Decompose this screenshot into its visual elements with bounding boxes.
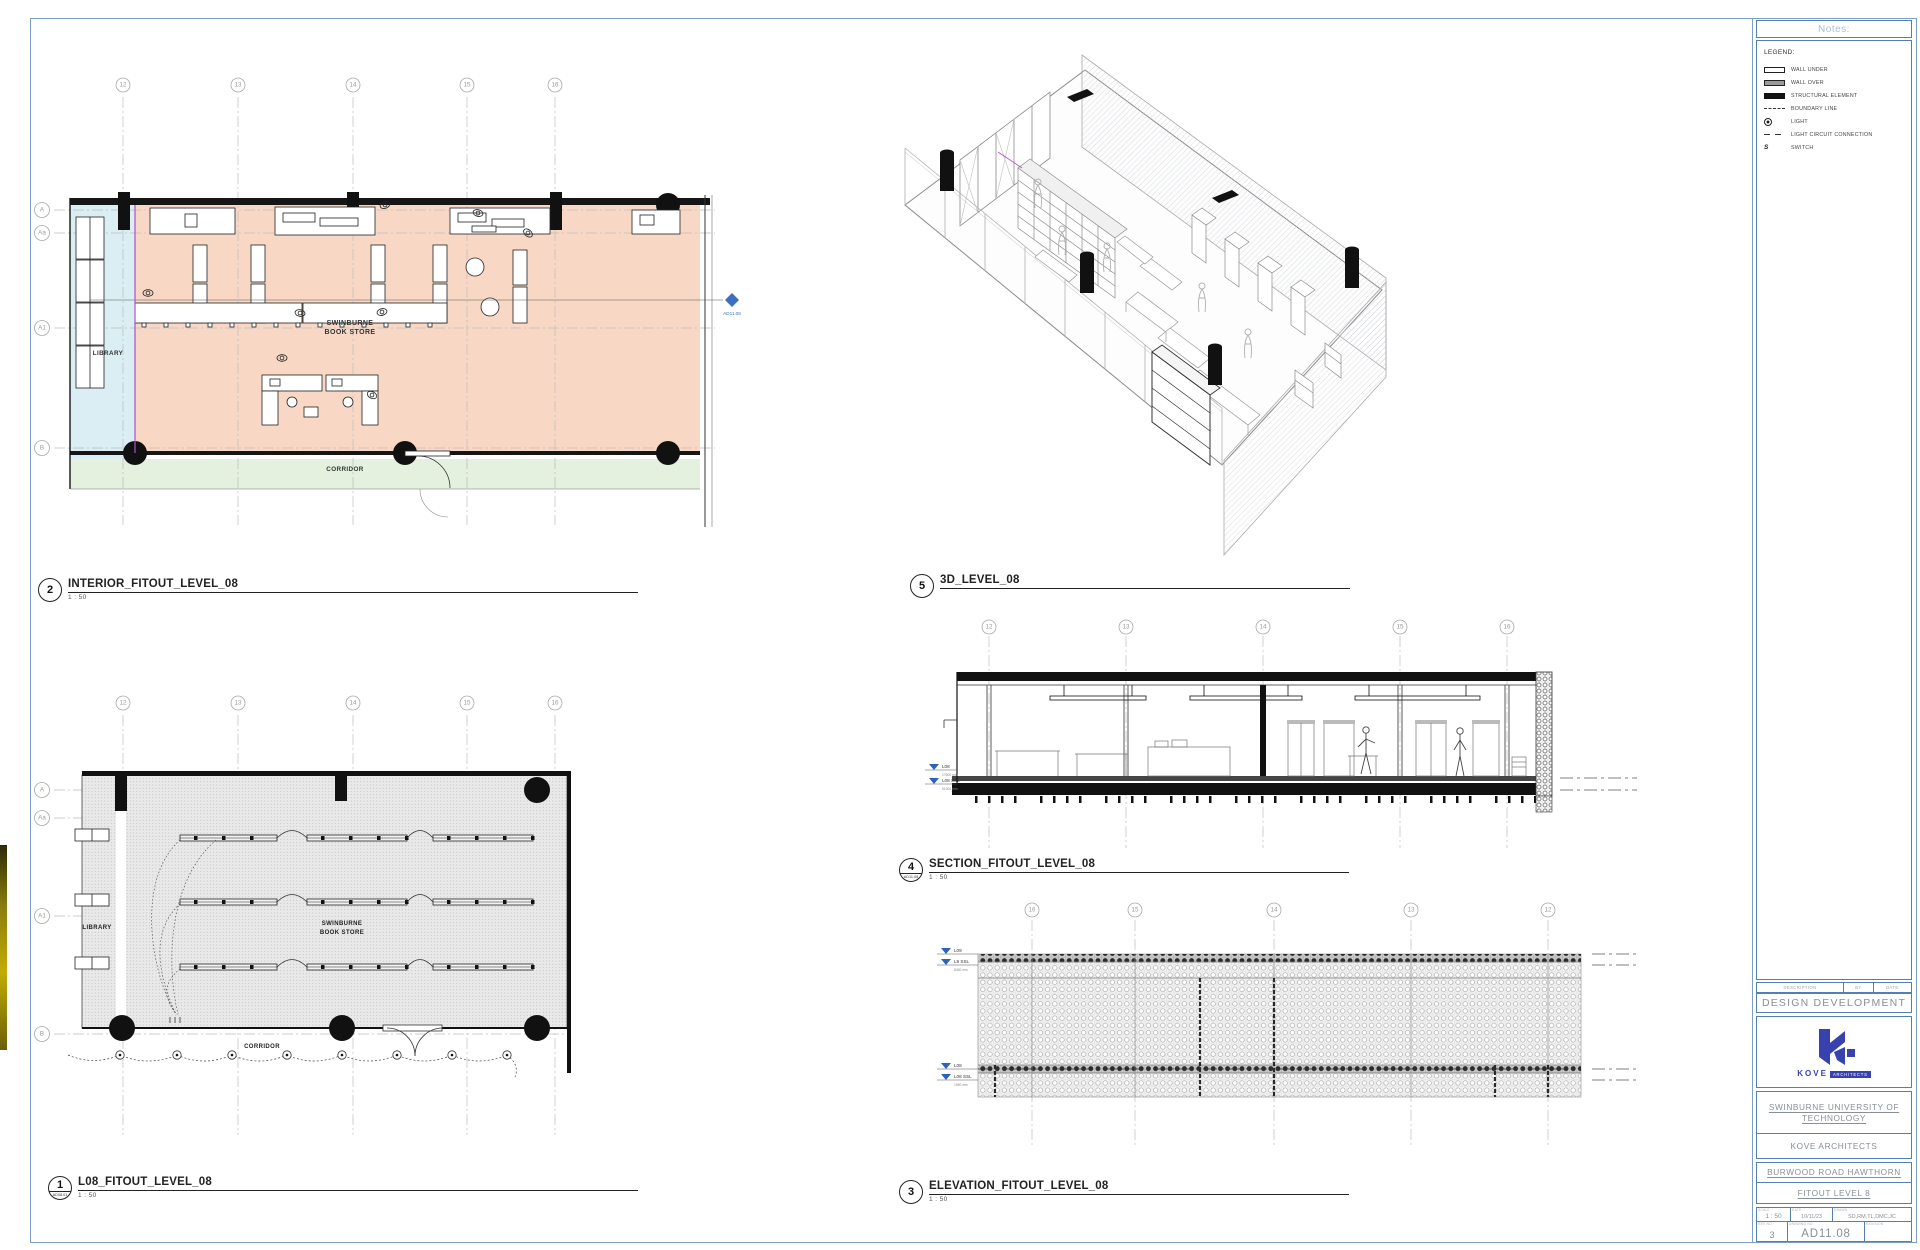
view-sheet-ref: AD08.01: [49, 1191, 71, 1197]
view-title-elevation: 3 ELEVATION_FITOUT_LEVEL_08 1 : 50: [899, 1180, 1349, 1204]
view-scale: 1 : 50: [68, 594, 638, 601]
rev-value: 3: [1769, 1230, 1774, 1240]
level-markers: L0827500 mmL08 SSL61300 mm: [925, 764, 960, 791]
svg-text:13: 13: [1122, 624, 1130, 631]
view-title-text: SECTION_FITOUT_LEVEL_08: [929, 858, 1349, 873]
interior-plan-view: 1213141516AAaA1B: [20, 55, 760, 570]
svg-text:14: 14: [1270, 907, 1278, 914]
svg-text:13: 13: [234, 700, 242, 707]
background-window-sliver: [0, 845, 7, 1050]
wall-over-icon: [1764, 80, 1785, 86]
svg-text:L08 SSL: L08 SSL: [954, 1074, 972, 1079]
sheet-number-label: DRAWING NO.: [1789, 1222, 1814, 1226]
corridor-light-run: [68, 1051, 516, 1077]
section-view: 1213141516: [900, 610, 1640, 855]
project-name: FITOUT LEVEL 8: [1798, 1188, 1871, 1199]
svg-text:14: 14: [349, 700, 357, 707]
drawn-value: SD,RM,TL,DMC,JC: [1848, 1214, 1896, 1220]
svg-text:16: 16: [1503, 624, 1511, 631]
library-label: LIBRARY: [93, 350, 124, 357]
store-label-1: SWINBURNE: [327, 320, 374, 327]
title-block-separator: [1752, 18, 1753, 1243]
view-number-bubble: 1 AD08.01: [48, 1176, 72, 1200]
logo-name: KOVE: [1797, 1069, 1828, 1078]
legend-item: LIGHT: [1764, 115, 1904, 128]
project-box: BURWOOD ROAD HAWTHORN FITOUT LEVEL 8: [1756, 1162, 1912, 1204]
continuation-lines: [1560, 778, 1637, 790]
svg-text:12: 12: [985, 624, 993, 631]
svg-text:L08 SSL: L08 SSL: [942, 778, 960, 783]
logo-subtitle: ARCHITECTS: [1830, 1071, 1871, 1078]
legend-label: SWITCH: [1791, 145, 1813, 151]
svg-text:13: 13: [1407, 907, 1415, 914]
legend-label: WALL OVER: [1791, 80, 1824, 86]
svg-text:15: 15: [463, 82, 471, 89]
kove-logo-icon: [1807, 1027, 1861, 1067]
boundary-icon: [1764, 108, 1785, 109]
axon-3d-view: [900, 40, 1640, 570]
view-title-interior: 2 INTERIOR_FITOUT_LEVEL_08 1 : 50: [38, 578, 638, 602]
legend-item: BOUNDARY LINE: [1764, 102, 1904, 115]
view-title-section: 4 AD11.08 SECTION_FITOUT_LEVEL_08 1 : 50: [899, 858, 1349, 882]
legend-item: SSWITCH: [1764, 141, 1904, 154]
scale-value: 1 : 50: [1765, 1213, 1781, 1220]
wall-under-icon: [1764, 67, 1785, 73]
notes-panel: LEGEND: WALL UNDERWALL OVERSTRUCTURAL EL…: [1756, 40, 1912, 980]
svg-text:16: 16: [551, 700, 559, 707]
svg-text:B: B: [40, 445, 44, 452]
client-name-line1: SWINBURNE UNIVERSITY OF: [1769, 1102, 1899, 1113]
architect-name: KOVE ARCHITECTS: [1791, 1141, 1878, 1152]
svg-text:13: 13: [234, 82, 242, 89]
svg-text:12: 12: [1544, 907, 1552, 914]
view-scale: 1 : 50: [78, 1192, 638, 1199]
view-title-rcp: 1 AD08.01 L08_FITOUT_LEVEL_08 1 : 50: [48, 1176, 638, 1200]
light-icon: [1764, 118, 1772, 126]
legend-label: LIGHT CIRCUIT CONNECTION: [1791, 132, 1872, 138]
drawn-label: DRAWN: [1834, 1208, 1847, 1212]
notes-header: Notes:: [1756, 20, 1912, 38]
store-label-2: BOOK STORE: [320, 930, 364, 936]
revision-label: REVISION: [1866, 1222, 1883, 1226]
section-people: [1358, 727, 1466, 776]
view-sheet-ref: AD11.08: [900, 873, 922, 879]
svg-text:1550 mm: 1550 mm: [954, 1083, 968, 1087]
svg-text:L08: L08: [954, 1063, 962, 1068]
drawing-sheet: { "sheet": { "status": "DESIGN DEVELOPME…: [0, 0, 1920, 1250]
view-title-text: INTERIOR_FITOUT_LEVEL_08: [68, 578, 638, 593]
rev-col-description: DESCRIPTION: [1757, 983, 1844, 992]
svg-text:12: 12: [119, 700, 127, 707]
svg-text:8460 mm: 8460 mm: [954, 968, 968, 972]
svg-text:Aa: Aa: [38, 230, 46, 237]
legend: WALL UNDERWALL OVERSTRUCTURAL ELEMENTBOU…: [1764, 63, 1904, 154]
svg-text:L09: L09: [954, 948, 962, 953]
rcp-plan-view: 1213141516AAaA1B LIBRARY: [20, 665, 760, 1185]
project-address: BURWOOD ROAD HAWTHORN: [1767, 1167, 1901, 1178]
continuation-lines: [1592, 954, 1637, 1080]
svg-text:27500 mm: 27500 mm: [942, 773, 958, 777]
rev-col-by: BY: [1844, 983, 1874, 992]
legend-item: WALL UNDER: [1764, 63, 1904, 76]
elevation-view: 1615141312 L09L9 SSL8460 mmL08L08 SSL155…: [900, 885, 1640, 1175]
facade-panel: [978, 954, 1581, 1097]
svg-text:14: 14: [1259, 624, 1267, 631]
svg-text:Aa: Aa: [38, 815, 46, 822]
view-title-text: ELEVATION_FITOUT_LEVEL_08: [929, 1180, 1349, 1195]
facade-blocks: [1536, 672, 1552, 812]
legend-label: STRUCTURAL ELEMENT: [1791, 93, 1857, 99]
firm-logo-box: KOVE ARCHITECTS: [1756, 1016, 1912, 1088]
library-label: LIBRARY: [82, 925, 111, 931]
svg-text:L9 SSL: L9 SSL: [954, 959, 970, 964]
level-markers: L09L9 SSL8460 mmL08L08 SSL1550 mm: [937, 948, 978, 1087]
legend-item: LIGHT CIRCUIT CONNECTION: [1764, 128, 1904, 141]
legend-item: WALL OVER: [1764, 76, 1904, 89]
svg-text:14: 14: [349, 82, 357, 89]
legend-label: BOUNDARY LINE: [1791, 106, 1837, 112]
view-scale: 1 : 50: [929, 1196, 1349, 1203]
svg-text:A1: A1: [38, 325, 46, 332]
status-row: DESIGN DEVELOPMENT: [1756, 993, 1912, 1013]
rev-label: REV NO: [1758, 1222, 1772, 1226]
view-number-bubble: 4 AD11.08: [899, 858, 923, 882]
corridor-label: CORRIDOR: [326, 466, 364, 473]
store-label-2: BOOK STORE: [325, 329, 376, 336]
view-number-bubble: 3: [899, 1180, 923, 1204]
svg-text:16: 16: [551, 82, 559, 89]
view-scale: 1 : 50: [929, 874, 1349, 881]
svg-text:A1: A1: [38, 913, 46, 920]
svg-text:15: 15: [1396, 624, 1404, 631]
scale-label: SCALE: [1758, 1208, 1770, 1212]
door: [383, 1025, 443, 1056]
switch-icon: S: [1764, 144, 1768, 151]
svg-text:16: 16: [1028, 907, 1036, 914]
sheet-info-grid: SCALE 1 : 50 DATE 10/11/23 DRAWN SD,RM,T…: [1756, 1207, 1912, 1242]
rev-col-date: DATE: [1874, 983, 1911, 992]
legend-title: LEGEND:: [1764, 49, 1904, 56]
svg-text:B: B: [40, 1031, 44, 1038]
legend-label: WALL UNDER: [1791, 67, 1828, 73]
svg-text:L08: L08: [942, 764, 950, 769]
circuit-icon: [1764, 134, 1785, 135]
view-title-text: L08_FITOUT_LEVEL_08: [78, 1176, 638, 1191]
client-name-line2: TECHNOLOGY: [1802, 1113, 1866, 1124]
revision-table-header: DESCRIPTION BY DATE: [1756, 982, 1912, 993]
legend-label: LIGHT: [1791, 119, 1808, 125]
sheet-number-value: AD11.08: [1801, 1228, 1851, 1240]
structural-icon: [1764, 93, 1785, 99]
date-value: 10/11/23: [1801, 1214, 1822, 1220]
date-label: DATE: [1792, 1208, 1801, 1212]
view-title-3d: 5 3D_LEVEL_08: [910, 574, 1350, 598]
client-box: SWINBURNE UNIVERSITY OF TECHNOLOGY KOVE …: [1756, 1091, 1912, 1159]
view-number-bubble: 2: [38, 578, 62, 602]
store-label-1: SWINBURNE: [322, 921, 363, 927]
section-marker-label: AD11.08: [723, 311, 741, 316]
structure: [944, 672, 1552, 795]
floor-hangers: [975, 796, 1537, 803]
svg-text:12: 12: [119, 82, 127, 89]
view-title-text: 3D_LEVEL_08: [940, 574, 1350, 589]
svg-text:61300 mm: 61300 mm: [942, 787, 958, 791]
svg-text:15: 15: [463, 700, 471, 707]
view-number-bubble: 5: [910, 574, 934, 598]
svg-text:15: 15: [1131, 907, 1139, 914]
corridor-label: CORRIDOR: [244, 1044, 280, 1050]
legend-item: STRUCTURAL ELEMENT: [1764, 89, 1904, 102]
